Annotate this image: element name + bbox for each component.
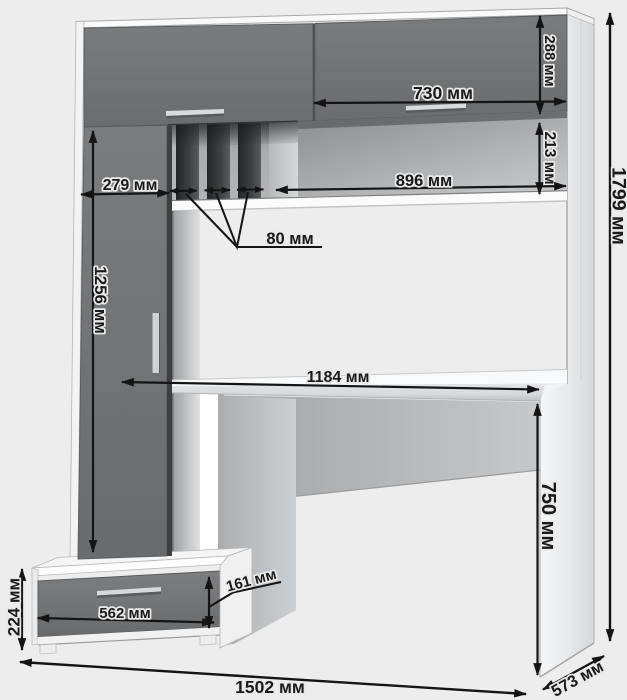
- svg-text:1256 мм: 1256 мм: [91, 266, 110, 334]
- svg-text:1502 мм: 1502 мм: [235, 677, 305, 697]
- svg-text:80 мм: 80 мм: [266, 230, 313, 248]
- svg-text:1799 мм: 1799 мм: [608, 167, 627, 245]
- svg-text:224 мм: 224 мм: [5, 578, 24, 636]
- svg-text:288 мм: 288 мм: [541, 35, 558, 86]
- svg-text:279 мм: 279 мм: [103, 177, 158, 194]
- svg-text:750 мм: 750 мм: [537, 482, 559, 551]
- svg-text:562 мм: 562 мм: [99, 605, 150, 622]
- svg-text:896 мм: 896 мм: [396, 172, 453, 190]
- svg-text:1184 мм: 1184 мм: [307, 369, 370, 386]
- svg-text:730 мм: 730 мм: [413, 83, 473, 103]
- svg-text:213 мм: 213 мм: [541, 131, 558, 184]
